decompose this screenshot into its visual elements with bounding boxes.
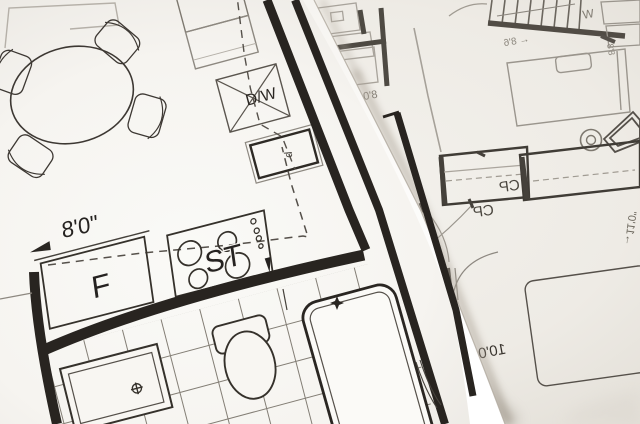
svg-text:CP: CP: [498, 177, 521, 197]
svg-text:CP: CP: [472, 202, 495, 222]
